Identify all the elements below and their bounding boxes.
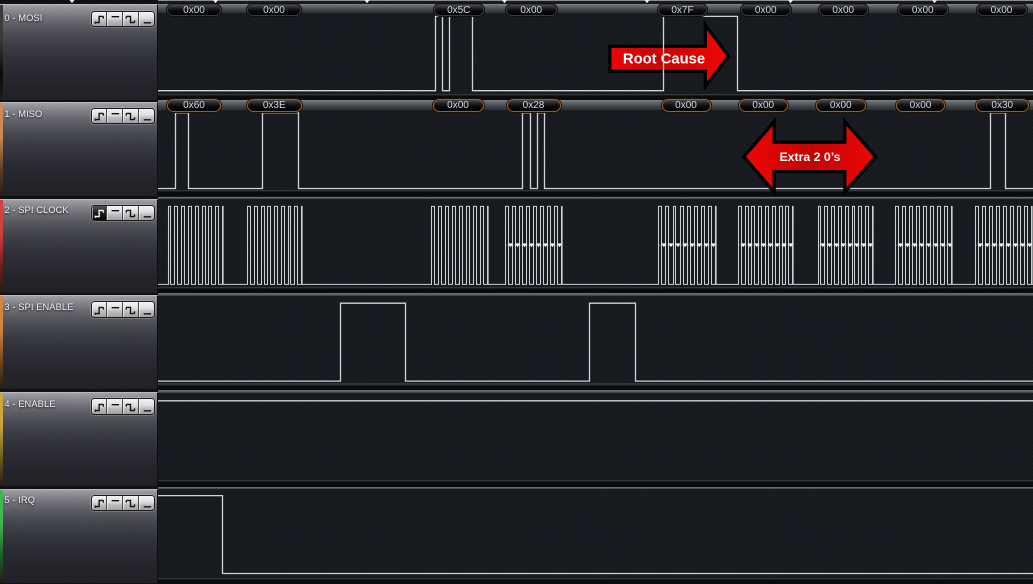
svg-text:Extra 2 0’s: Extra 2 0’s bbox=[779, 150, 840, 164]
